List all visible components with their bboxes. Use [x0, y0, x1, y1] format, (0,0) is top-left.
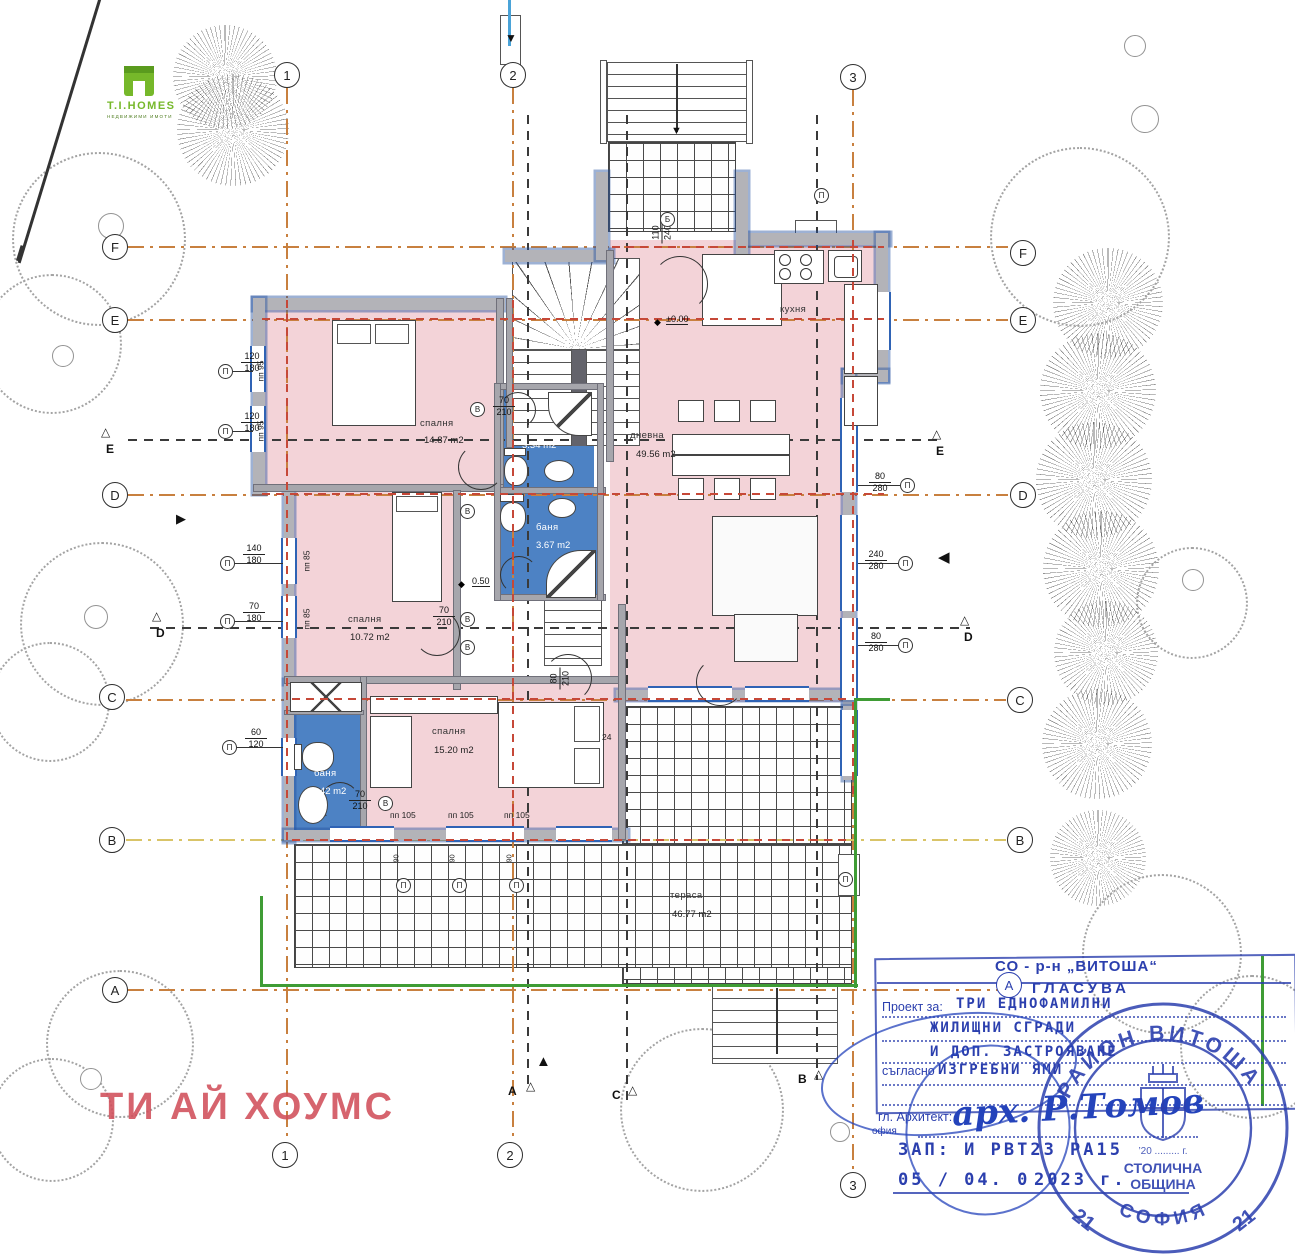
height-value: 210 — [430, 618, 458, 627]
window-size-tag: 80280 — [862, 632, 890, 653]
kitchen-counter — [702, 254, 782, 326]
burner-icon — [800, 254, 812, 266]
room-label: дневна — [630, 430, 664, 441]
exterior-wall — [253, 298, 505, 310]
floor-plan-sheet: { "logo": { "title": "T.I.HOMES", "tagli… — [0, 0, 1295, 1200]
room-area: 10.72 m2 — [350, 632, 390, 643]
parapet-label: пп 95 — [256, 360, 266, 381]
window-marker: П — [509, 878, 524, 893]
door-size-tag: 80210 — [550, 665, 571, 693]
window-marker: П — [218, 364, 233, 379]
coat-of-arms-icon — [1141, 1064, 1185, 1140]
room-label: кухня — [780, 304, 806, 315]
axis-overlay — [512, 300, 514, 840]
width-value: 70 — [430, 606, 458, 615]
dim-label: 90 — [505, 854, 514, 862]
room-area: 46.77 m2 — [672, 909, 712, 920]
parapet-label: пп 105 — [390, 810, 416, 820]
window-size-tag: 140180 — [240, 544, 268, 565]
window-marker: П — [220, 614, 235, 629]
parapet-label: пп 85 — [302, 608, 312, 629]
section-marker-d-left: D — [156, 626, 165, 640]
grid-circle-1-bottom: 1 — [272, 1142, 298, 1168]
grid-circle-2-bottom: 2 — [497, 1142, 523, 1168]
axis-overlay — [286, 300, 288, 840]
stair-down-arrow-icon: ▼ — [671, 126, 682, 137]
section-marker-e-right: E — [936, 444, 944, 458]
watermark: ТИ АЙ ХОУМС — [100, 1086, 395, 1129]
section-line-c — [626, 115, 628, 1100]
height-value: 180 — [240, 556, 268, 565]
window — [281, 596, 297, 638]
window-marker: П — [222, 740, 237, 755]
shrub-icon — [52, 345, 74, 367]
toilet-tank — [294, 744, 302, 770]
width-value: 70 — [240, 602, 268, 611]
round-stamp-date-line: ’20 ......... г. — [1138, 1146, 1187, 1157]
section-marker-e-left: E — [106, 442, 114, 456]
level-diamond-icon: ◆ — [458, 580, 465, 589]
entrance-door — [652, 256, 708, 312]
height-value: 210 — [346, 802, 374, 811]
window-marker: П — [838, 872, 853, 887]
pillow — [337, 324, 371, 344]
logo-roof-bar — [124, 66, 154, 73]
dim-label: 24 — [602, 732, 611, 742]
grid-circle-a-left: A — [102, 977, 128, 1003]
window-size-tag: 240280 — [862, 550, 890, 571]
axis-overlay — [292, 839, 848, 841]
pillow — [375, 324, 409, 344]
landscape-line — [260, 896, 263, 986]
round-stamp-bottom-text: СОФИЯ — [1116, 1198, 1213, 1230]
bedroom-1-door — [458, 444, 504, 490]
shrub-icon — [830, 1122, 850, 1142]
logo-door-notch — [133, 81, 145, 96]
grid-circle-e-right: E — [1010, 307, 1036, 333]
exterior-wall — [253, 298, 265, 494]
section-marker-triangle: △ — [152, 610, 161, 622]
svg-text:СОФИЯ: СОФИЯ — [1116, 1198, 1213, 1230]
position-marker: В — [460, 504, 475, 519]
height-value: 280 — [862, 562, 890, 571]
kitchen-counter — [844, 284, 878, 374]
dining-chair — [750, 478, 776, 500]
door-size-tag: 70210 — [430, 606, 458, 627]
width-value: 70 — [346, 790, 374, 799]
grid-circle-b-right: B — [1007, 827, 1033, 853]
pillow — [574, 748, 600, 784]
landscape-line — [854, 698, 857, 988]
stair-rail — [600, 60, 607, 144]
grid-circle-3-bottom: 3 — [840, 1172, 866, 1198]
landscape-line — [260, 984, 858, 987]
landscape-line — [854, 698, 890, 701]
burner-icon — [779, 254, 791, 266]
section-marker-triangle: △ — [628, 1084, 637, 1096]
conifer-tree-icon — [177, 74, 289, 186]
section-marker-triangle: △ — [932, 428, 941, 440]
window-marker: П — [396, 878, 411, 893]
round-stamp-inner-text: СТОЛИЧНА — [1124, 1160, 1202, 1176]
garden-steps — [712, 986, 838, 1064]
position-marker: В — [460, 640, 475, 655]
grid-circle-a-right: A — [996, 972, 1022, 998]
position-marker: П — [814, 188, 829, 203]
width-value: 80 — [550, 665, 559, 693]
door-marker: В — [470, 402, 485, 417]
room-label: баня — [314, 768, 337, 779]
shower-tray — [290, 682, 362, 712]
parapet-label: пп 85 — [302, 550, 312, 571]
room-area: 4.42 m2 — [312, 786, 346, 797]
toilet — [504, 456, 528, 486]
room-area: 3.34 m2 — [522, 440, 556, 451]
round-stamp-inner-text: ОБЩИНА — [1130, 1176, 1196, 1192]
height-value: 210 — [562, 665, 571, 693]
section-marker-triangle: △ — [960, 614, 969, 626]
parapet-label: пп 105 — [448, 810, 474, 820]
grid-circle-b-left: B — [99, 827, 125, 853]
terrace-tiles — [294, 844, 852, 968]
door-size-tag: 70210 — [346, 790, 374, 811]
room-label: спалня — [420, 418, 454, 429]
pillow — [574, 706, 600, 742]
section-marker-c-bottom: С — [612, 1088, 621, 1102]
room-area: 14.87 m2 — [424, 435, 464, 446]
dim-label: 90 — [392, 854, 401, 862]
exterior-wall — [740, 233, 890, 245]
logo-title: T.I.HOMES — [107, 100, 176, 112]
width-value: 70 — [490, 396, 518, 405]
logo-tagline: НЕДВИЖИМИ ИМОТИ — [107, 114, 173, 119]
shrub-icon — [80, 1068, 102, 1090]
grid-circle-2-top: 2 — [500, 62, 526, 88]
height-value: 120 — [242, 740, 270, 749]
height-value: 280 — [862, 644, 890, 653]
burner-icon — [800, 268, 812, 280]
sofa — [712, 516, 818, 616]
kitchen-cabinet — [844, 376, 878, 426]
axis-overlay — [852, 240, 854, 800]
conifer-tree-icon — [1042, 689, 1152, 799]
section-marker-a-bottom: А — [508, 1084, 517, 1098]
width-value: 60 — [242, 728, 270, 737]
window-size-tag: 80280 — [866, 472, 894, 493]
axis-overlay — [292, 698, 850, 700]
section-marker-b-bottom: В — [798, 1072, 807, 1086]
washbasin — [548, 498, 576, 518]
height-value: 180 — [240, 614, 268, 623]
window-marker: П — [220, 556, 235, 571]
grid-circle-d-right: D — [1010, 482, 1036, 508]
stair-walk-line — [676, 64, 678, 132]
window — [281, 538, 297, 584]
window-marker: П — [898, 556, 913, 571]
deciduous-tree-icon — [1136, 547, 1248, 659]
room-label: спалня — [432, 726, 466, 737]
round-municipal-stamp: РАЙОН ВИТОША СОФИЯ 21 21 ’20 ......... г… — [1031, 996, 1295, 1260]
room-area: 15.20 m2 — [434, 745, 474, 756]
window-size-tag: 70180 — [240, 602, 268, 623]
section-marker-triangle: △ — [101, 426, 110, 438]
position-marker: Б — [660, 212, 675, 227]
room-label: спалня — [348, 614, 382, 625]
door-size-tag: 70210 — [490, 396, 518, 417]
window — [840, 515, 858, 611]
grid-circle-d-left: D — [102, 482, 128, 508]
stamp-row-label: Проект за: — [882, 1000, 943, 1014]
deciduous-tree-icon — [0, 642, 110, 762]
dining-chair — [750, 400, 776, 422]
section-marker-d-right: D — [964, 630, 973, 644]
interior-stair-winder — [512, 258, 640, 350]
width-value: 140 — [240, 544, 268, 553]
dining-chair — [714, 400, 740, 422]
level-value: 0.50 — [472, 576, 490, 587]
direction-arrow-icon: ▶ — [176, 512, 186, 525]
dining-table — [672, 434, 790, 476]
dim-label: 90 — [448, 854, 457, 862]
interior-wall — [453, 490, 461, 690]
room-area: 3.67 m2 — [536, 540, 570, 551]
width-value: 80 — [862, 632, 890, 641]
shrub-icon — [1131, 105, 1159, 133]
room-label: тераса — [670, 890, 703, 901]
dining-chair — [678, 400, 704, 422]
grid-circle-c-left: C — [99, 684, 125, 710]
door-marker: В — [460, 612, 475, 627]
washbasin — [544, 460, 574, 482]
parapet-label: пп 105 — [504, 810, 530, 820]
bathroom-2-door — [500, 556, 538, 594]
dining-chair — [678, 478, 704, 500]
stair-rail — [746, 60, 753, 144]
shrub-icon — [1182, 569, 1204, 591]
north-arrow-icon: ◀ — [938, 550, 950, 565]
window — [840, 618, 858, 700]
stamp-header: СО - р-н „ВИТОША“ — [995, 958, 1158, 975]
grid-circle-c-right: C — [1007, 687, 1033, 713]
height-value: 210 — [490, 408, 518, 417]
width-value: 110 — [652, 219, 661, 247]
height-value: 280 — [866, 484, 894, 493]
grid-circle-1-top: 1 — [274, 62, 300, 88]
interior-wall — [618, 604, 626, 840]
grid-circle-e-left: E — [102, 307, 128, 333]
axis-overlay — [262, 493, 884, 495]
window-size-tag: 60120 — [242, 728, 270, 749]
shrub-icon — [1124, 35, 1146, 57]
exterior-wall — [596, 172, 608, 260]
window-marker: П — [218, 424, 233, 439]
wardrobe — [370, 716, 412, 788]
door-marker: В — [378, 796, 393, 811]
window-marker: П — [452, 878, 467, 893]
axis-overlay — [262, 318, 884, 320]
sink-basin — [834, 256, 858, 278]
stair-walk-line — [776, 988, 778, 1054]
window-marker: П — [898, 638, 913, 653]
level-diamond-icon: ◆ — [654, 318, 661, 327]
stamp-subheader: ГЛАСУВА — [1032, 980, 1130, 997]
interior-wall — [606, 250, 614, 462]
deciduous-tree-icon — [990, 147, 1170, 327]
pillow — [396, 496, 438, 512]
section-marker-triangle: △ — [526, 1080, 535, 1092]
parapet-label: пп 95 — [256, 420, 266, 441]
grid-circle-f-left: F — [102, 234, 128, 260]
window-marker: П — [900, 478, 915, 493]
dining-chair — [714, 478, 740, 500]
room-label: баня — [536, 522, 559, 533]
grid-circle-3-top: 3 — [840, 64, 866, 90]
level-value: ±0.00 — [666, 314, 688, 325]
width-value: 240 — [862, 550, 890, 559]
grid-circle-f-right: F — [1010, 240, 1036, 266]
bathroom-wall — [597, 383, 604, 601]
direction-arrow-icon: ▲ — [536, 1054, 551, 1069]
room-area: 49.56 m2 — [636, 449, 676, 460]
room-label: баня — [522, 422, 545, 433]
shrub-icon — [84, 605, 108, 629]
width-value: 80 — [866, 472, 894, 481]
burner-icon — [779, 268, 791, 280]
sofa-chaise — [734, 614, 798, 662]
flow-arrow-icon: ▼ — [505, 32, 517, 44]
